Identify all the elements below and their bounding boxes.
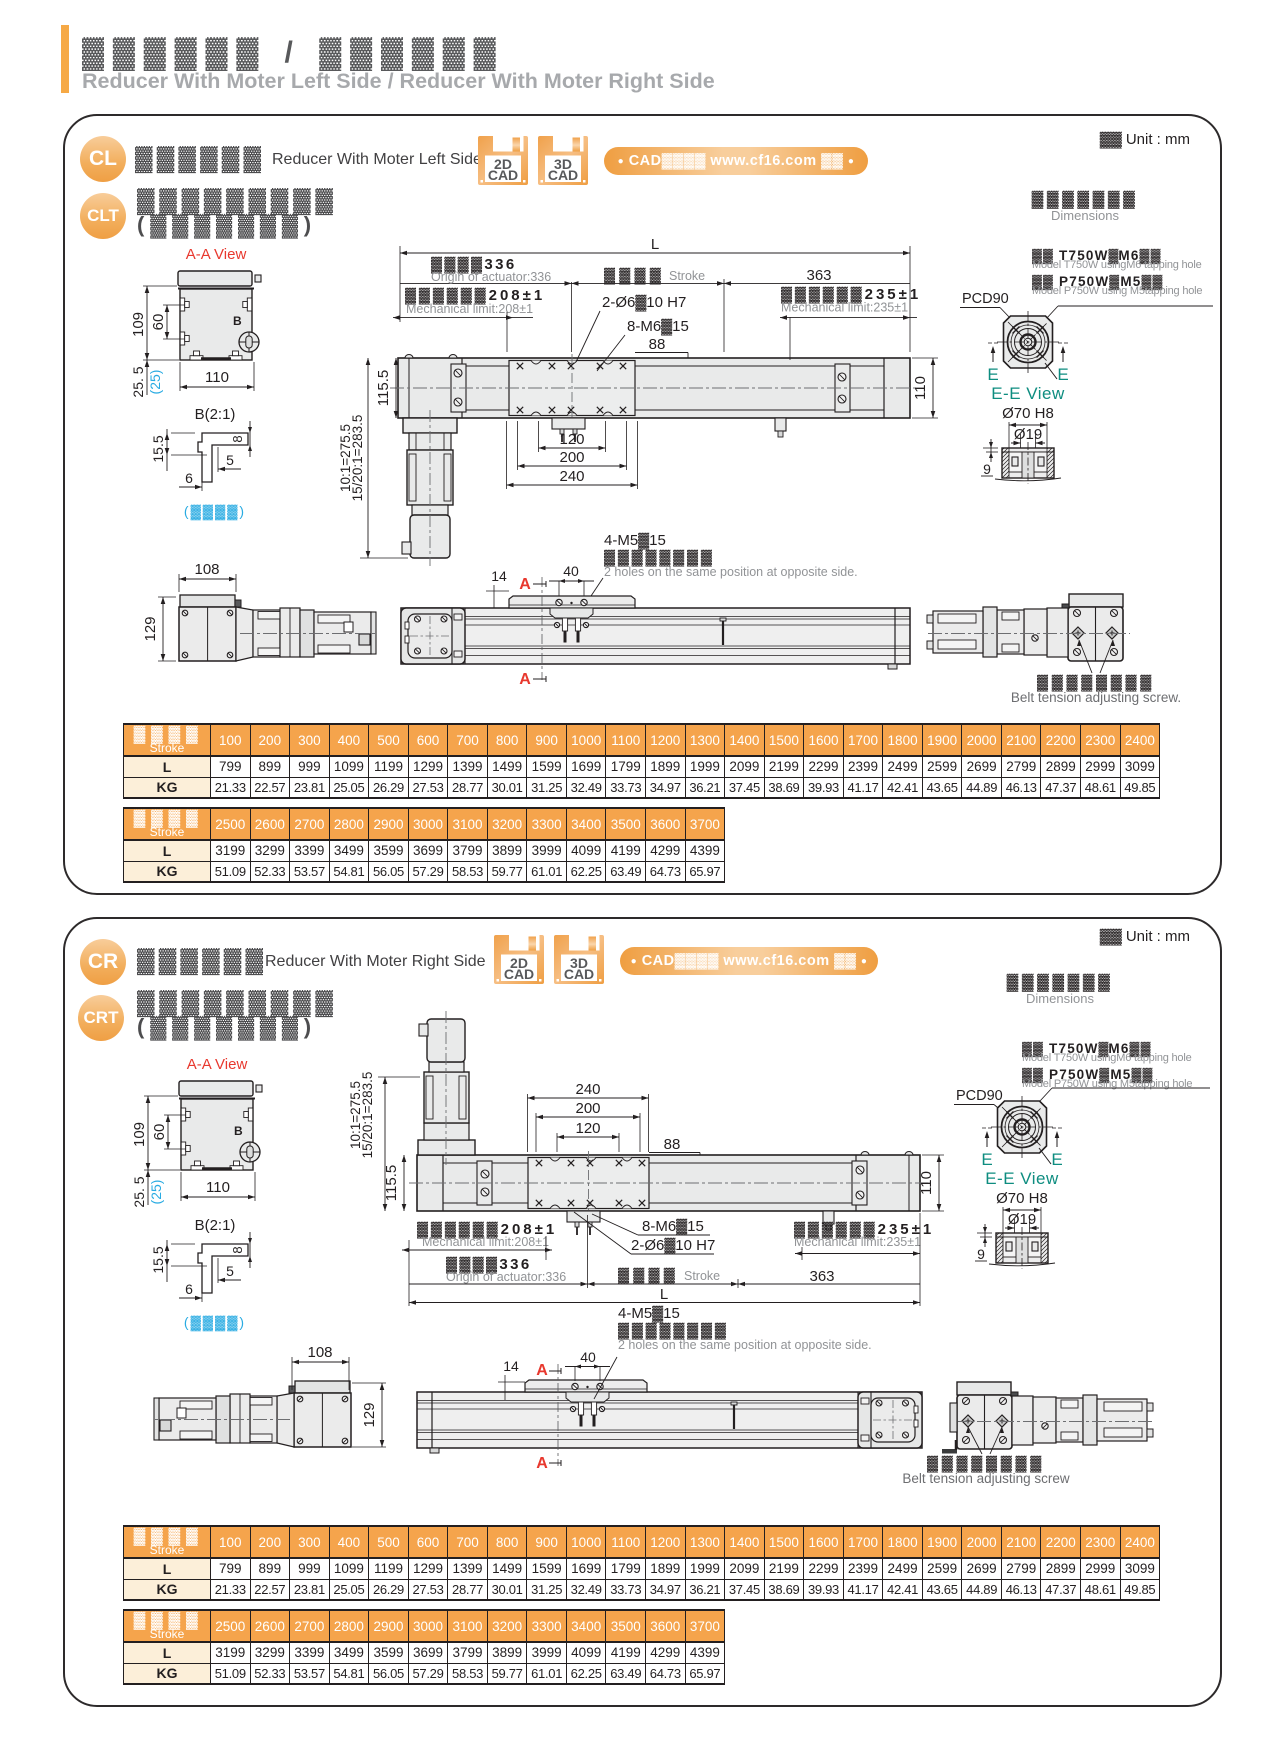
svg-text:110: 110 xyxy=(918,1171,935,1195)
svg-text:88: 88 xyxy=(664,1136,681,1153)
svg-text:15.5: 15.5 xyxy=(150,435,166,462)
svg-text:Ø70 H8: Ø70 H8 xyxy=(1002,405,1054,422)
svg-text:108: 108 xyxy=(194,561,219,578)
svg-text:A-A View: A-A View xyxy=(187,1056,248,1073)
svg-text:200: 200 xyxy=(575,1100,600,1117)
svg-text:Origin of actuator:336: Origin of actuator:336 xyxy=(446,1270,566,1284)
svg-text:108: 108 xyxy=(307,1344,332,1361)
svg-text:(25): (25) xyxy=(147,370,163,395)
svg-text:14: 14 xyxy=(503,1358,519,1374)
svg-text:A: A xyxy=(536,1455,548,1472)
svg-text:2 holes on the same position a: 2 holes on the same position at opposite… xyxy=(604,565,858,579)
svg-text:PCD90: PCD90 xyxy=(956,1088,1003,1104)
svg-text:CAD: CAD xyxy=(564,966,594,982)
svg-text:14: 14 xyxy=(491,568,507,584)
svg-text:Mechanical limit:208±1: Mechanical limit:208±1 xyxy=(422,1235,549,1249)
svg-text:CAD: CAD xyxy=(548,167,578,183)
svg-text:40: 40 xyxy=(563,563,579,579)
svg-text:B(2:1): B(2:1) xyxy=(195,1217,236,1234)
svg-text:5: 5 xyxy=(226,452,234,468)
svg-text:40: 40 xyxy=(580,1349,596,1365)
svg-text:E-E View: E-E View xyxy=(985,1169,1059,1188)
svg-text:CAD: CAD xyxy=(488,167,518,183)
svg-text:L: L xyxy=(651,236,659,253)
svg-text:Ø70 H8: Ø70 H8 xyxy=(996,1190,1048,1207)
svg-text:15.5: 15.5 xyxy=(150,1246,166,1273)
svg-text:E: E xyxy=(1051,1150,1062,1169)
svg-text:120: 120 xyxy=(575,1120,600,1137)
svg-text:Mechanical limit:235±1: Mechanical limit:235±1 xyxy=(794,1235,921,1249)
svg-text:4-M5▓15: 4-M5▓15 xyxy=(604,532,666,550)
svg-text:129: 129 xyxy=(142,616,159,641)
svg-text:4-M5▓15: 4-M5▓15 xyxy=(618,1305,680,1323)
svg-text:9: 9 xyxy=(977,1246,985,1262)
svg-text:363: 363 xyxy=(809,1268,834,1285)
svg-text:15/20:1=283.5: 15/20:1=283.5 xyxy=(350,415,365,502)
svg-text:Stroke: Stroke xyxy=(684,1269,720,1283)
svg-text:B: B xyxy=(234,1124,243,1138)
svg-text:▓▓▓▓: ▓▓▓▓ xyxy=(604,267,665,285)
svg-text:110: 110 xyxy=(206,1179,230,1196)
svg-text:(▓▓▓▓): (▓▓▓▓) xyxy=(184,1314,246,1332)
svg-text:A: A xyxy=(519,576,531,593)
svg-text:25. 5: 25. 5 xyxy=(131,1176,147,1207)
svg-text:110: 110 xyxy=(912,376,929,400)
svg-text:363: 363 xyxy=(806,267,831,284)
svg-text:60: 60 xyxy=(150,314,167,331)
svg-text:120: 120 xyxy=(559,431,584,448)
svg-text:129: 129 xyxy=(361,1402,378,1427)
svg-text:E: E xyxy=(981,1150,992,1169)
svg-text:Ø19: Ø19 xyxy=(1014,426,1042,443)
svg-text:2-Ø6▓10 H7: 2-Ø6▓10 H7 xyxy=(602,294,686,312)
svg-text:109: 109 xyxy=(131,1122,148,1147)
svg-text:B: B xyxy=(233,314,242,328)
svg-text:Stroke: Stroke xyxy=(669,269,705,283)
svg-text:Belt tension adjusting screw.: Belt tension adjusting screw. xyxy=(1011,690,1181,705)
svg-text:6: 6 xyxy=(185,470,193,486)
svg-text:PCD90: PCD90 xyxy=(962,291,1009,307)
svg-text:9: 9 xyxy=(983,461,991,477)
svg-text:15/20:1=283.5: 15/20:1=283.5 xyxy=(360,1072,375,1159)
svg-text:E: E xyxy=(987,365,998,384)
svg-text:8: 8 xyxy=(230,435,245,442)
svg-text:60: 60 xyxy=(151,1124,168,1141)
svg-text:▓▓▓▓: ▓▓▓▓ xyxy=(618,1267,679,1285)
svg-text:Belt tension adjusting screw: Belt tension adjusting screw xyxy=(902,1471,1070,1486)
svg-text:A: A xyxy=(519,671,531,688)
svg-text:8: 8 xyxy=(230,1246,245,1253)
svg-text:240: 240 xyxy=(559,468,584,485)
svg-text:109: 109 xyxy=(130,312,147,337)
svg-text:88: 88 xyxy=(649,336,666,353)
svg-text:Mechanical limit:208±1: Mechanical limit:208±1 xyxy=(406,302,533,316)
svg-text:A-A View: A-A View xyxy=(186,246,247,263)
svg-text:5: 5 xyxy=(226,1263,234,1279)
svg-text:6: 6 xyxy=(185,1281,193,1297)
svg-text:2 holes on the same position a: 2 holes on the same position at opposite… xyxy=(618,1338,872,1352)
svg-text:25. 5: 25. 5 xyxy=(130,366,146,397)
svg-text:Ø19: Ø19 xyxy=(1008,1211,1036,1228)
svg-text:Mechanical limit:235±1: Mechanical limit:235±1 xyxy=(781,301,908,315)
svg-text:B(2:1): B(2:1) xyxy=(195,406,236,423)
svg-text:A: A xyxy=(536,1362,548,1379)
svg-text:(25): (25) xyxy=(148,1180,164,1205)
svg-text:8-M6▓15: 8-M6▓15 xyxy=(642,1218,704,1236)
svg-text:E: E xyxy=(1057,365,1068,384)
svg-text:8-M6▓15: 8-M6▓15 xyxy=(627,318,689,336)
svg-text:115.5: 115.5 xyxy=(375,370,392,406)
svg-text:110: 110 xyxy=(205,369,229,386)
svg-text:Origin of actuator:336: Origin of actuator:336 xyxy=(431,270,551,284)
svg-text:2-Ø6▓10 H7: 2-Ø6▓10 H7 xyxy=(631,1237,715,1255)
svg-text:115.5: 115.5 xyxy=(383,1165,400,1201)
svg-text:CAD: CAD xyxy=(504,966,534,982)
svg-text:200: 200 xyxy=(559,449,584,466)
svg-text:240: 240 xyxy=(575,1081,600,1098)
svg-text:E-E View: E-E View xyxy=(991,384,1065,403)
svg-text:(▓▓▓▓): (▓▓▓▓) xyxy=(184,503,246,521)
svg-text:L: L xyxy=(660,1286,668,1303)
